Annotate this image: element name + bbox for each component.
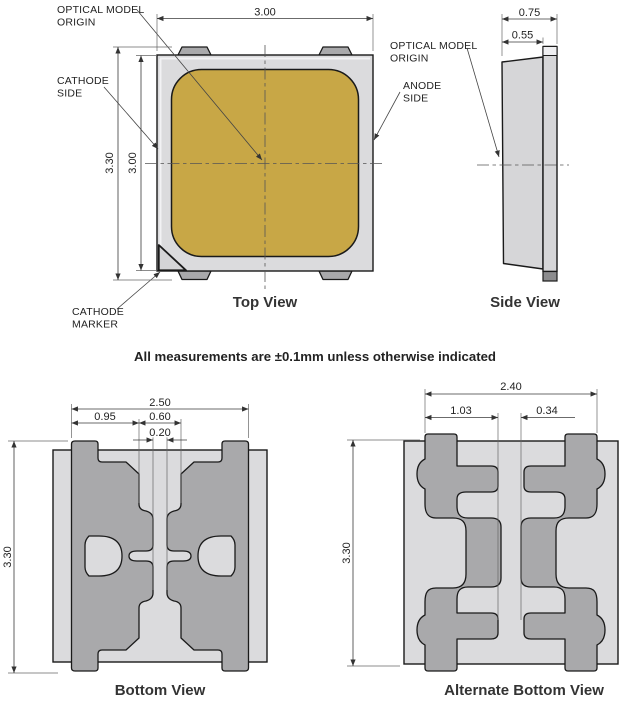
bottom-view: 2.50 0.95 0.60 0.20 3.30 Bottom View [2,397,267,699]
dim-height: 3.30 [341,542,353,563]
dim-center-gap: 0.20 [149,427,170,439]
cathode-side-label: SIDE [57,88,82,100]
anode-side-label: ANODE [403,80,441,92]
leader-cathode-side [104,87,158,149]
cathode-marker-label: MARKER [72,319,118,331]
anode-side-label: SIDE [403,93,428,105]
alternate-bottom-view: 2.40 1.03 0.34 3.30 Alternate Bottom Vie… [341,381,618,699]
drawing-canvas: OPTICAL MODEL ORIGIN CATHODE SIDE ANODE … [0,0,622,702]
dim-width: 3.00 [254,7,275,19]
dim-pad-span: 2.40 [500,381,521,393]
dim-pad-width: 0.95 [94,411,115,423]
side-view-substrate-edge [543,47,557,272]
side-view-top-band [543,47,557,56]
optical-origin-label: ORIGIN [57,17,96,29]
side-view: OPTICAL MODEL ORIGIN 0.75 0.55 Side View [390,7,569,311]
dim-total-depth: 0.75 [519,7,540,19]
alt-bottom-view-caption: Alternate Bottom View [444,682,604,699]
top-view-caption: Top View [233,294,298,311]
side-view-bottom-pad [543,272,557,282]
top-view-tab [319,47,352,55]
top-view-tab [178,271,211,280]
top-view-tab [178,47,211,55]
dim-overall-height: 3.30 [104,152,116,173]
optical-origin-side-label: ORIGIN [390,53,429,65]
side-view-caption: Side View [490,294,560,311]
dim-pad-width: 1.03 [450,405,471,417]
top-view: OPTICAL MODEL ORIGIN CATHODE SIDE ANODE … [57,4,441,331]
bottom-view-caption: Bottom View [115,682,206,699]
dim-body-depth: 0.55 [512,30,533,42]
top-view-tab [319,271,352,280]
dim-pad-span: 2.50 [149,397,170,409]
leader-cathode-marker [117,272,160,309]
dim-body-height: 3.00 [127,152,139,173]
dim-height: 3.30 [2,546,14,567]
tolerance-note: All measurements are ±0.1mm unless other… [134,349,496,364]
leader-optical-origin-side [467,48,499,157]
cathode-side-label: CATHODE [57,75,109,87]
dim-center-gap: 0.34 [536,405,557,417]
optical-origin-side-label: OPTICAL MODEL [390,40,477,52]
optical-origin-label: OPTICAL MODEL [57,4,144,16]
leader-anode-side [374,92,400,140]
side-view-lens-body [502,57,543,269]
mechanical-drawing-page: OPTICAL MODEL ORIGIN CATHODE SIDE ANODE … [0,0,622,702]
dim-center-span: 0.60 [149,411,170,423]
cathode-marker-label: CATHODE [72,306,124,318]
